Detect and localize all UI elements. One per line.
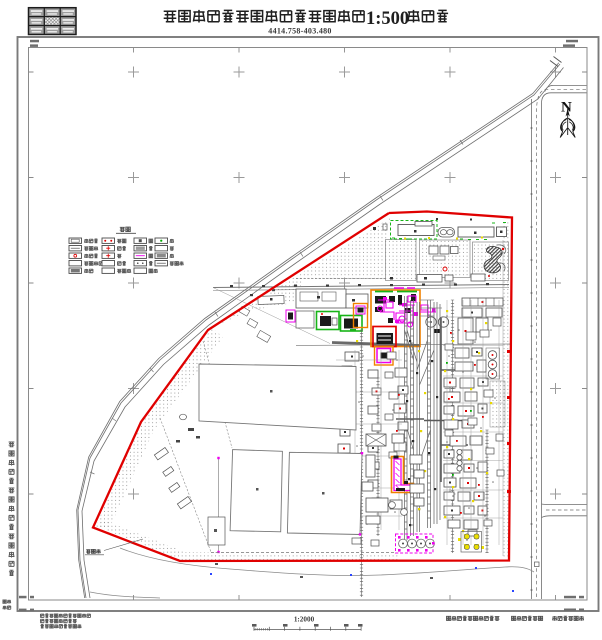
svg-text:1:2000: 1:2000 (294, 616, 315, 624)
svg-text:4414.758-403.480: 4414.758-403.480 (268, 27, 331, 36)
svg-text:1:500: 1:500 (366, 9, 409, 29)
